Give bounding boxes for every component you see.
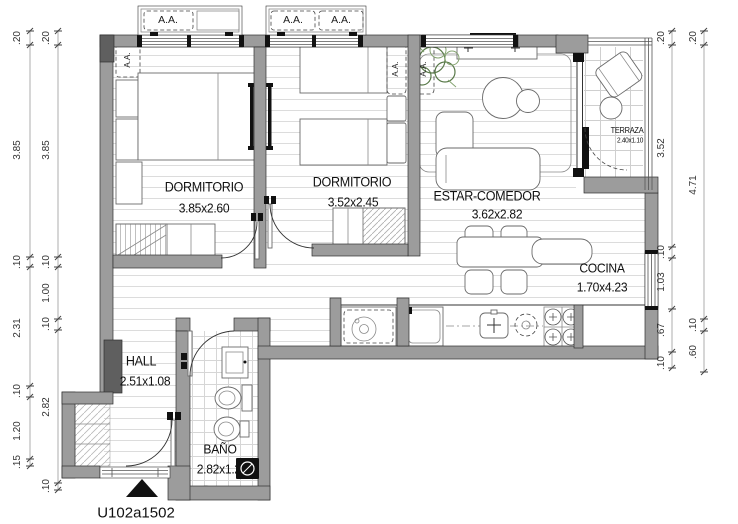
- fridge-icon: [405, 307, 443, 346]
- dim-label: .20: [689, 31, 699, 45]
- room-label-hall: HALL: [126, 354, 156, 368]
- extractor-fan-icon: [236, 458, 259, 479]
- kitchen-furniture: [341, 305, 645, 348]
- dim-label: 3.85: [42, 140, 52, 159]
- dim-label: 3.85: [13, 140, 23, 159]
- window-2: [265, 35, 363, 47]
- room-dims-terraza: 2.40x1.10: [617, 138, 643, 145]
- bathroom-sink-icon: [222, 347, 248, 378]
- floor-plan: DORMITORIO 3.85x2.60 DORMITORIO 3.52x2.4…: [0, 0, 738, 524]
- double-bed-icon: [138, 73, 256, 160]
- terrace-table-icon: [600, 97, 622, 119]
- dim-label: .10: [13, 255, 23, 269]
- single-bed-icon: [300, 45, 387, 93]
- bidet-icon: [214, 417, 249, 441]
- floor-plan-drawing: [0, 0, 738, 524]
- dim-label: .20: [657, 31, 667, 45]
- window-3: [421, 35, 518, 47]
- ac-label: A.A.: [124, 52, 132, 67]
- wardrobe-icon: [116, 224, 215, 256]
- ac-label: A.A.: [392, 61, 400, 76]
- sink-icon: [480, 310, 508, 338]
- dim-label: .20: [13, 31, 23, 45]
- ac-label: A.A.: [420, 61, 428, 76]
- side-table-icon: [517, 90, 540, 113]
- dim-label: .60: [689, 345, 699, 359]
- room-dims-dormitorio1: 3.85x2.60: [179, 202, 230, 215]
- dim-label: 2.31: [13, 318, 23, 337]
- dim-label: 1.03: [657, 272, 667, 291]
- room-label-estar: ESTAR-COMEDOR: [433, 189, 540, 203]
- dim-label: .10: [689, 318, 699, 332]
- ac-label: A.A.: [283, 15, 303, 26]
- dim-label: .10: [42, 317, 52, 331]
- dim-label: 2.82: [42, 397, 52, 416]
- dim-label: 1.00: [42, 283, 52, 302]
- entrance-arrow-icon: [126, 479, 158, 497]
- dim-label: 3.52: [657, 138, 667, 157]
- dim-label: .15: [13, 455, 23, 469]
- dim-label: .10: [42, 479, 52, 493]
- dim-label: 1.20: [13, 421, 23, 440]
- dim-label: .10: [42, 255, 52, 269]
- dim-label: .67: [657, 323, 667, 337]
- toilet-icon: [215, 385, 252, 411]
- unit-label: U102a1502: [97, 506, 175, 521]
- ac-label: A.A.: [331, 15, 351, 26]
- room-label-cocina: COCINA: [579, 262, 624, 275]
- room-label-dormitorio1: DORMITORIO: [165, 180, 244, 194]
- dim-label: .20: [42, 31, 52, 45]
- room-label-dormitorio2: DORMITORIO: [313, 175, 392, 189]
- dim-label: 4.71: [689, 175, 699, 194]
- room-label-terraza: TERRAZA: [611, 127, 644, 135]
- room-dims-cocina: 1.70x4.23: [577, 281, 628, 294]
- room-label-bano: BAÑO: [203, 443, 236, 456]
- dim-label: .10: [657, 245, 667, 259]
- window-1: [137, 35, 244, 47]
- room-dims-estar: 3.62x2.82: [472, 208, 523, 221]
- room-dims-hall: 2.51x1.08: [120, 375, 171, 388]
- single-bed-icon: [300, 119, 387, 165]
- washer-icon: [341, 307, 396, 346]
- dim-label: .10: [13, 384, 23, 398]
- wardrobe-icon: [333, 208, 405, 245]
- ac-label: A.A.: [158, 15, 178, 26]
- room-dims-dormitorio2: 3.52x2.45: [328, 196, 379, 209]
- dim-label: .10: [657, 356, 667, 370]
